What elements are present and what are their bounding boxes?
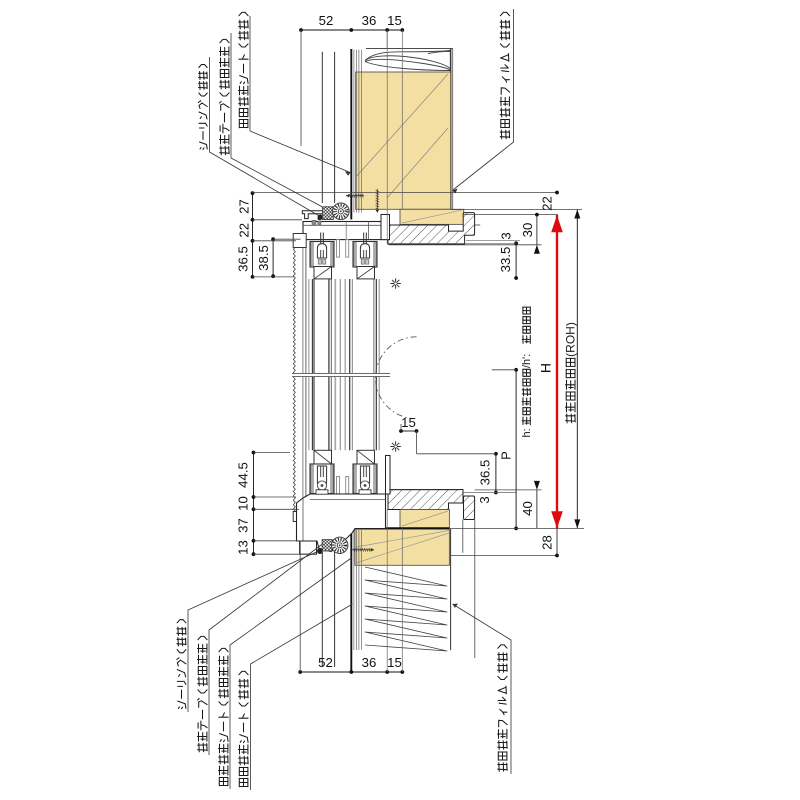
svg-text:15: 15: [387, 13, 402, 28]
svg-text:52: 52: [318, 655, 333, 670]
svg-text:30: 30: [520, 223, 535, 238]
svg-text:38.5: 38.5: [256, 245, 271, 271]
svg-text:22: 22: [540, 196, 555, 211]
svg-text:27: 27: [237, 199, 252, 214]
svg-text:10: 10: [236, 496, 251, 511]
svg-text:13: 13: [236, 540, 251, 555]
svg-text:33.5: 33.5: [498, 247, 513, 273]
svg-text:15: 15: [387, 655, 402, 670]
svg-text:3: 3: [499, 232, 514, 239]
svg-text:H: H: [538, 363, 554, 373]
svg-text:37: 37: [236, 518, 251, 533]
svg-text:40: 40: [520, 501, 535, 516]
svg-text:15: 15: [401, 415, 416, 430]
svg-text:22: 22: [237, 223, 252, 238]
svg-text:36: 36: [362, 13, 377, 28]
svg-text:52: 52: [319, 13, 334, 28]
svg-text:36.5: 36.5: [478, 460, 493, 486]
svg-text:P: P: [499, 451, 514, 460]
svg-text:(ROH): (ROH): [563, 322, 577, 357]
svg-text:28: 28: [540, 535, 555, 550]
svg-text:h:: h:: [521, 428, 533, 437]
svg-text:44.5: 44.5: [236, 462, 251, 488]
svg-text:3: 3: [477, 496, 492, 503]
svg-text:36: 36: [362, 655, 377, 670]
svg-text:36.5: 36.5: [236, 246, 251, 272]
svg-text:/h':: /h':: [521, 354, 533, 368]
